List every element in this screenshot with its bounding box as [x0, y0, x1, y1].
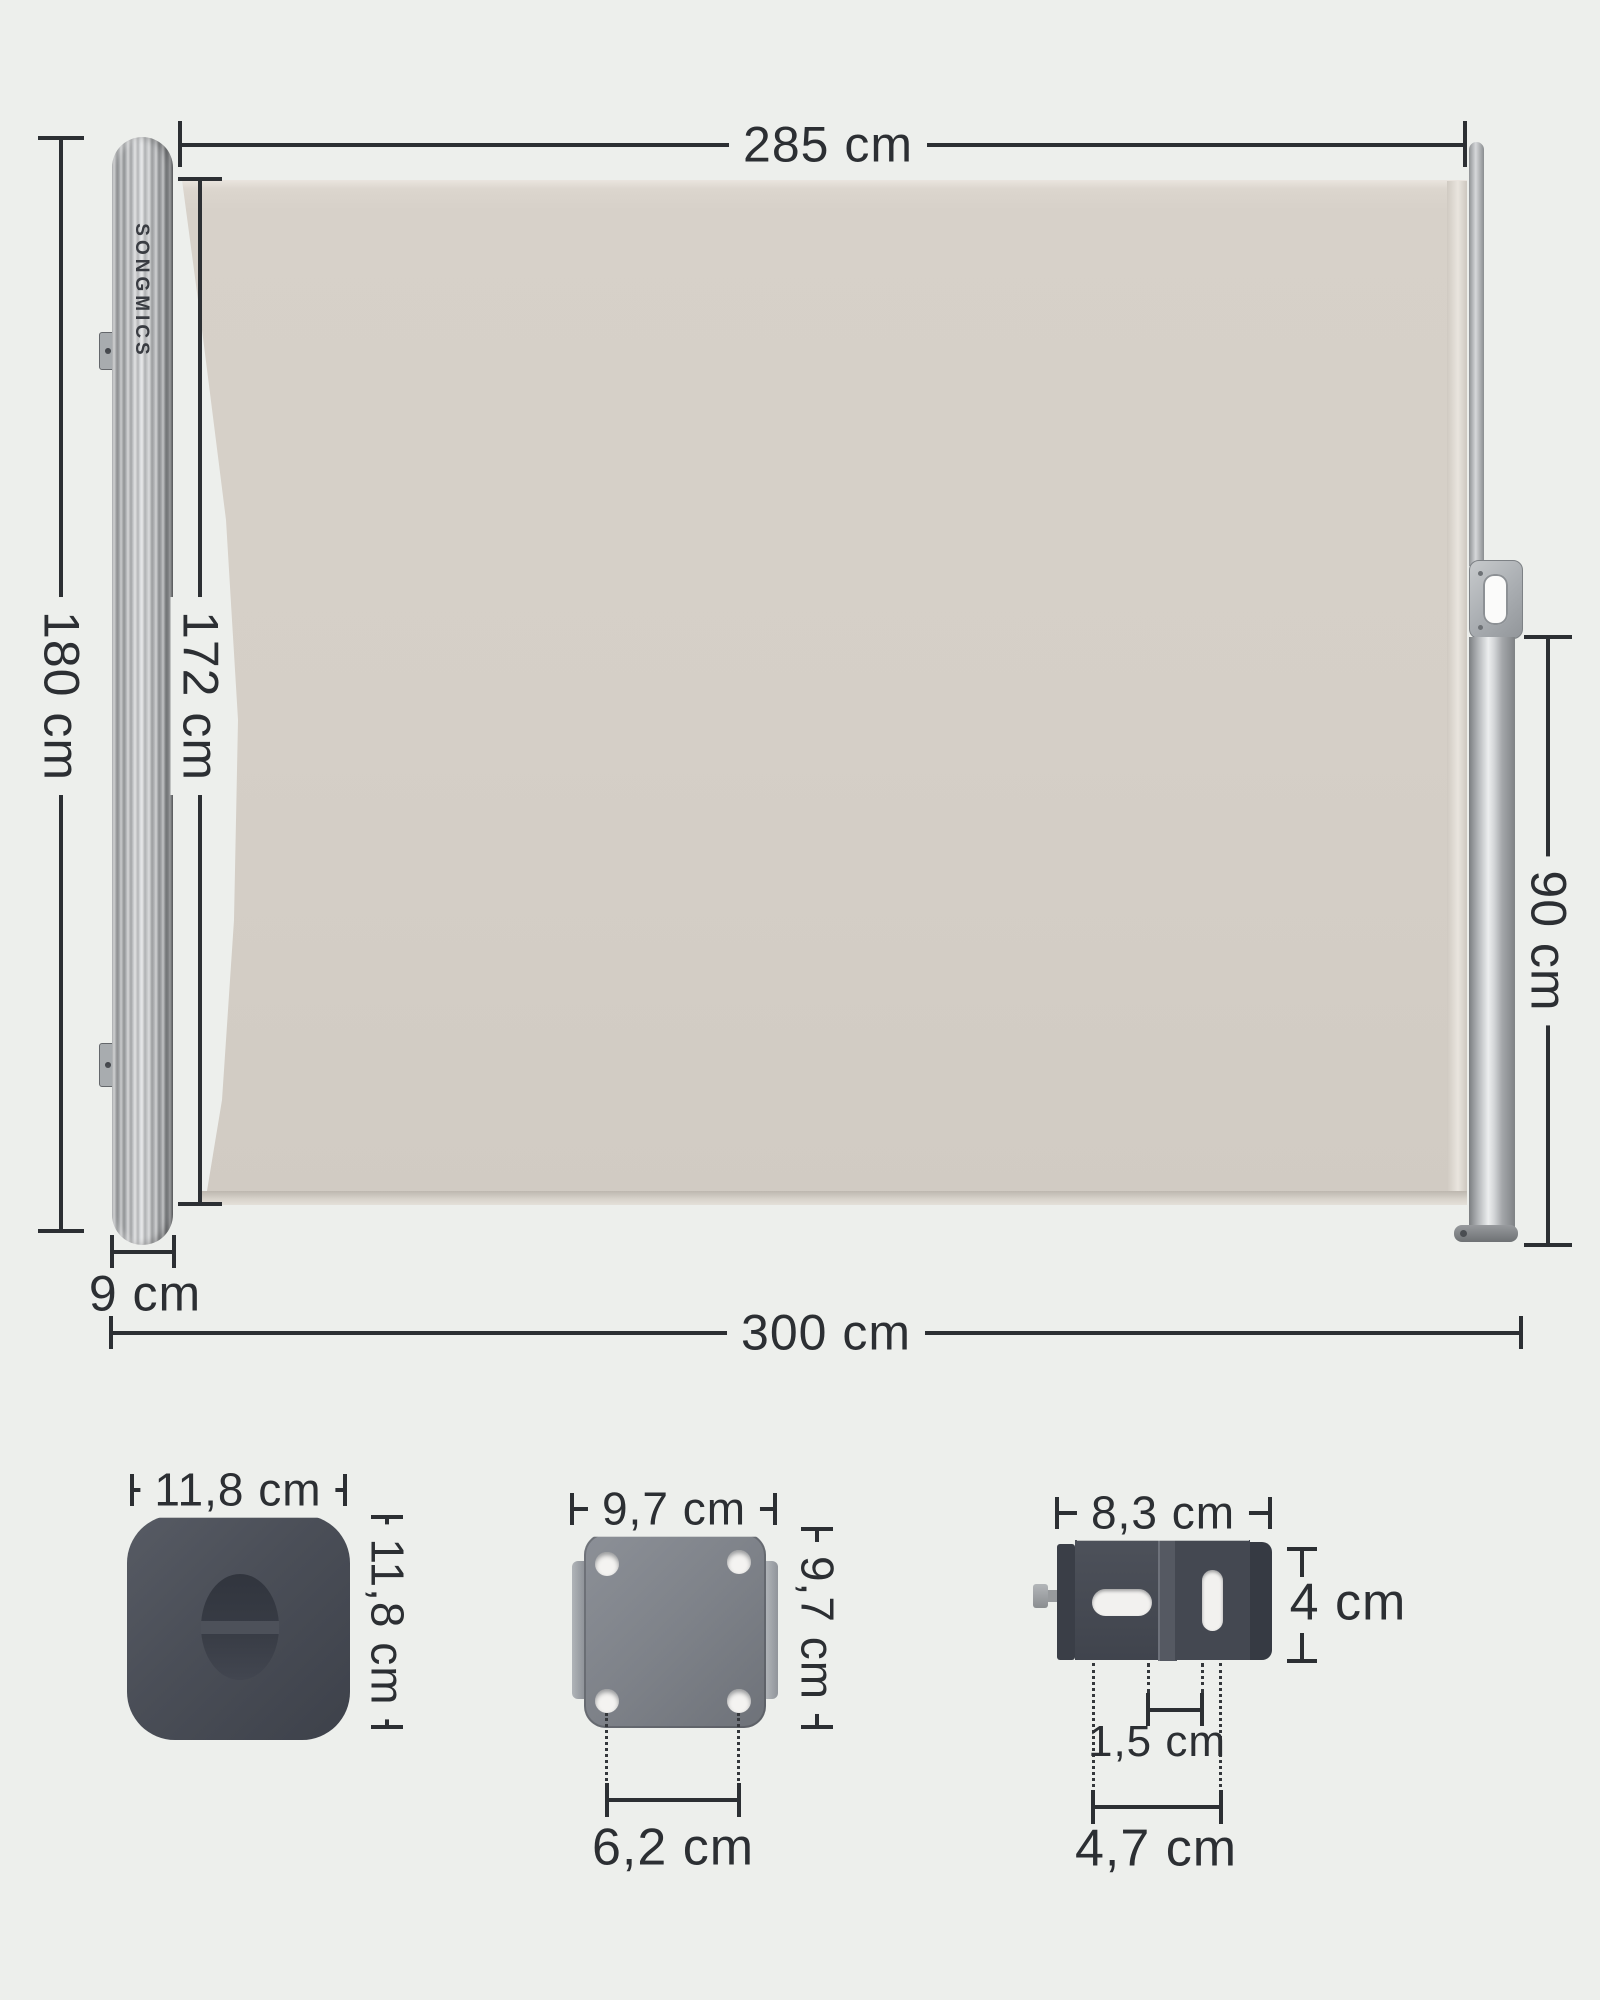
dim-right-post-height-label: 90 cm: [1519, 856, 1578, 1025]
bracket-width-label: 8,3 cm: [1077, 1486, 1249, 1541]
plate-spacing-tick-right: [737, 1783, 741, 1817]
dim-fabric-width-label: 285 cm: [729, 116, 927, 175]
bracket-slot-offset-label: 1,5 cm: [1082, 1718, 1232, 1766]
awning-fabric-right-fold: [1447, 181, 1467, 1203]
cap-width-tick-left: [130, 1474, 134, 1506]
cap-height-tick-top: [371, 1515, 403, 1519]
cap-width-label: 11,8 cm: [140, 1463, 335, 1518]
dim-9-tick-left: [110, 1235, 114, 1268]
bracket-slot-horizontal: [1092, 1589, 1152, 1616]
handle-screw: [1478, 625, 1483, 630]
pull-post-lower-tube: [1469, 637, 1515, 1233]
cap-height-tick-bottom: [371, 1725, 403, 1729]
cap-width-tick-right: [343, 1474, 347, 1506]
plate-width-tick-right: [773, 1493, 777, 1525]
plate-hole-top-left: [595, 1552, 619, 1576]
bracket-screw-head: [1033, 1584, 1048, 1608]
plate-hole-guide-right: [737, 1713, 740, 1786]
clip-screw-hole: [105, 348, 111, 354]
pull-handle: [1469, 560, 1523, 639]
dim-fabric-height-label: 172 cm: [171, 597, 230, 795]
awning-fabric-bottom-rail: [202, 1191, 1467, 1205]
plate-side-tab-right: [766, 1561, 778, 1699]
bracket-height-stub-bottom: [1300, 1633, 1304, 1663]
dim-cassette-depth-label: 9 cm: [75, 1265, 215, 1324]
brand-logo: SONGMICS: [130, 223, 152, 358]
plate-spacing-line: [607, 1798, 739, 1802]
plate-height-tick-bottom: [801, 1725, 833, 1729]
bracket-guide-inner-right: [1201, 1663, 1204, 1693]
cap-oval-bar: [201, 1621, 279, 1634]
product-dimension-diagram: SONGMICS 285 cm 180 cm 172 cm 90 cm 9 cm…: [0, 0, 1600, 2000]
corner-cap-part: [127, 1515, 350, 1740]
dim-180-tick-bottom: [38, 1229, 84, 1233]
plate-width-tick-left: [570, 1493, 574, 1525]
bracket-hole-spacing-label: 4,7 cm: [1061, 1818, 1251, 1879]
plate-side-tab-left: [572, 1561, 584, 1699]
bracket-slot-offset-line: [1148, 1708, 1204, 1712]
bracket-guide-inner-left: [1147, 1663, 1150, 1693]
dim-90-tick-bottom: [1524, 1243, 1572, 1247]
dim-9-tick-right: [172, 1235, 176, 1268]
handle-screw: [1478, 571, 1483, 576]
dim-total-height-label: 180 cm: [32, 597, 91, 795]
plate-hole-bottom-left: [595, 1689, 619, 1713]
bracket-height-label: 4 cm: [1276, 1572, 1421, 1633]
bracket-width-tick-left: [1055, 1497, 1059, 1529]
handle-grip-slot: [1483, 574, 1508, 625]
pull-post-base: [1454, 1225, 1518, 1242]
bracket-right-flange: [1250, 1542, 1272, 1660]
plate-hole-top-right: [727, 1550, 751, 1574]
bracket-spacing-line: [1093, 1805, 1221, 1809]
dim-total-width-label: 300 cm: [727, 1304, 925, 1363]
dim-172-tick-top: [178, 177, 222, 181]
plate-width-label: 9,7 cm: [588, 1482, 760, 1537]
awning-fabric-panel: [168, 180, 1467, 1203]
dim-90-tick-top: [1524, 635, 1572, 639]
bracket-width-tick-right: [1268, 1497, 1272, 1529]
bracket-slot-vertical: [1202, 1570, 1223, 1631]
base-bolt: [1460, 1230, 1467, 1237]
dim-285-tick-right: [1463, 121, 1467, 167]
plate-spacing-tick-left: [605, 1783, 609, 1817]
dim-180-tick-top: [38, 136, 84, 140]
bracket-left-flange: [1057, 1544, 1075, 1660]
dim-300-tick-right: [1519, 1316, 1523, 1349]
dim-172-tick-bottom: [178, 1202, 222, 1206]
dim-285-tick-left: [178, 121, 182, 167]
plate-hole-bottom-right: [727, 1689, 751, 1713]
dim-300-tick-left: [109, 1316, 113, 1349]
plate-hole-guide-left: [605, 1713, 608, 1786]
pull-post-upper-tube: [1469, 142, 1484, 566]
plate-height-label: 9,7 cm: [790, 1542, 845, 1714]
plate-height-tick-top: [801, 1527, 833, 1531]
clip-screw-hole: [105, 1062, 111, 1068]
cap-height-label: 11,8 cm: [360, 1524, 415, 1719]
plate-hole-spacing-label: 6,2 cm: [578, 1817, 768, 1878]
dim-9-line: [112, 1250, 176, 1254]
